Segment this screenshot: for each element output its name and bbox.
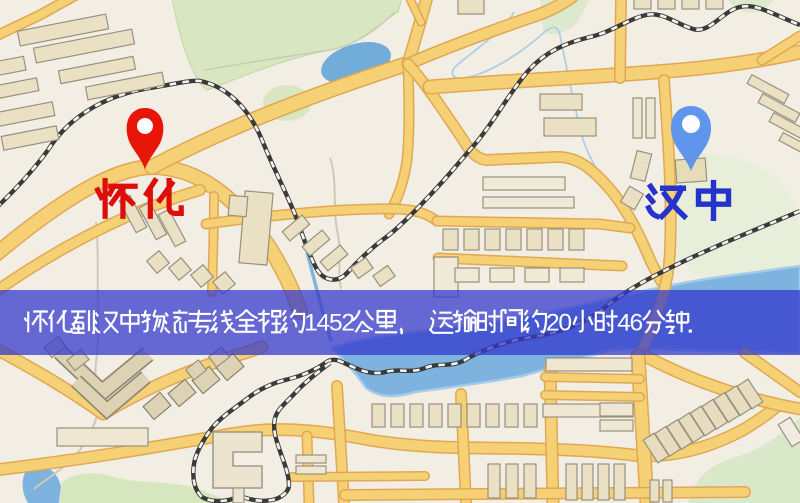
svg-text:20: 20 xyxy=(546,310,571,337)
svg-text:46: 46 xyxy=(617,310,642,337)
svg-text:1452: 1452 xyxy=(304,310,354,337)
